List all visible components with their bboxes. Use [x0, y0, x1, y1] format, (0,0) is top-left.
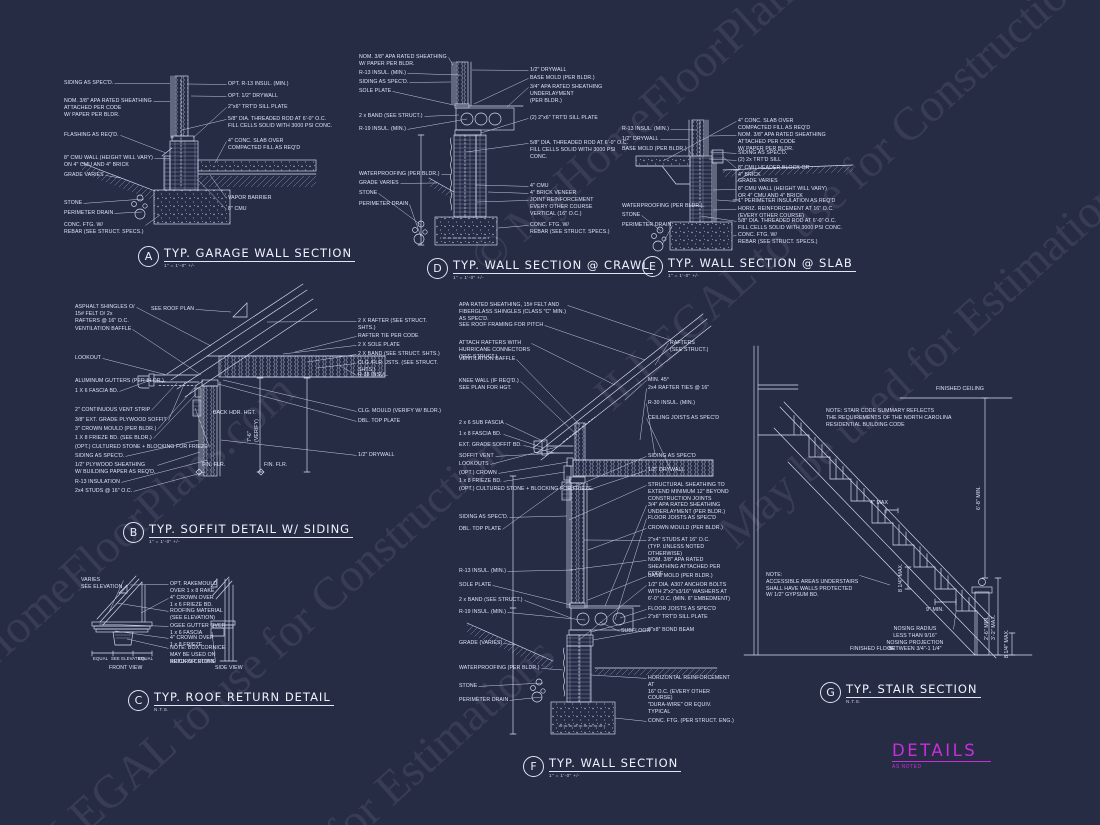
callout-label: 4" CMU — [530, 183, 549, 190]
detail-scale: 1" = 1'-0" +/- — [164, 263, 355, 268]
callout-label: 8" CMU — [228, 206, 247, 213]
callout-label: 2"x4" STUDS AT 16" O.C. (TYP. UNLESS NOT… — [648, 537, 710, 557]
callout-label: (OPT.) CULTURED STONE + BLOCKING FOR FRI… — [75, 444, 208, 451]
callout-label: GRADE (VARIES) — [459, 640, 502, 647]
callout-label: KNEE WALL (IF REQ'D.) SEE PLAN FOR HGT. — [459, 378, 519, 392]
callout-label: 4" CROWN OVER 1 x 6 FRIEZE BD. — [170, 595, 214, 609]
callout-label: BASE MOLD (PER BLDR.) — [530, 75, 595, 82]
callout-label: STONE — [459, 683, 477, 690]
callout-label: BASE MOLD (PER BLDR.) — [622, 146, 687, 153]
callout-label: 2 x BAND (SEE STRUCT.) — [359, 113, 423, 120]
understair-note: NOTE: ACCESSIBLE AREAS UNDERSTAIRS SHALL… — [766, 572, 858, 599]
stair-code-note: NOTE: STAIR CODE SUMMARY REFLECTS THE RE… — [826, 408, 952, 428]
callout-label: SIDING AS SPEC'D. — [359, 79, 408, 86]
detail-scale: 1" = 1'-0" +/- — [149, 539, 353, 544]
callout-label: ALUMINUM GUTTERS (PER BLDR.) — [75, 378, 164, 385]
callout-label: R-13 INSULATION — [75, 479, 120, 486]
callout-label: EXT. GRADE SOFFIT BD. — [459, 442, 522, 449]
callout-label: (2) 2"x6" TRT'D SILL PLATE — [530, 115, 598, 122]
callout-label: 4" BRICK VENEER — [530, 190, 576, 197]
detail-title-text: TYP. ROOF RETURN DETAIL — [154, 690, 334, 706]
detail-title-g: G TYP. STAIR SECTION N.T.S. — [820, 682, 981, 704]
detail-bubble-b: B — [123, 522, 144, 543]
callout-label: 1/2" DIA. A307 ANCHOR BOLTS WITH 2"x2"x3… — [648, 582, 730, 602]
callout-label: 2 X SOLE PLATE — [358, 342, 400, 349]
detail-bubble-c: C — [128, 690, 149, 711]
callout-label: WATERPROOFING (PER BLDR.) — [459, 665, 540, 672]
callout-label: 3/4" APA RATED SHEATHING UNDERLAYMENT (P… — [530, 84, 631, 104]
callout-label: RAFTER TIE PER CODE — [358, 333, 419, 340]
callout-label: OPT. RAKEMOULD OVER 1 x 8 RAKE — [170, 581, 217, 595]
detail-bubble-a: A — [138, 246, 159, 267]
callout-label: R-13 INSUL. (MIN.) — [459, 568, 506, 575]
callout-label: STONE — [622, 212, 640, 219]
callout-label: NOM. 3/8" APA RATED SHEATHING W/ PAPER P… — [359, 54, 447, 68]
detail-title-text: TYP. STAIR SECTION — [846, 682, 981, 698]
callout-label: HORIZONTAL REINFORCEMENT AT 16" O.C. (EV… — [648, 675, 735, 716]
bottom-riser-dim: 8 1/4" MAX. — [1004, 629, 1011, 658]
cad-details-sheet: SIDING AS SPEC'D. NOM. 3/8" APA RATED SH… — [0, 0, 1100, 825]
callout-label: DBL. TOP PLATE — [358, 418, 400, 425]
callout-label: R-19 INSUL. (MIN.) — [359, 126, 406, 133]
finished-ceiling-label: FINISHED CEILING — [936, 386, 984, 393]
callout-label: 3" CROWN MOULD (PER BLDR.) — [75, 426, 156, 433]
callout-label: PERIMETER DRAIN — [359, 201, 408, 208]
detail-title-b: B TYP. SOFFIT DETAIL W/ SIDING 1" = 1'-0… — [123, 522, 353, 544]
callout-label: 1/2" DRYWALL — [530, 67, 567, 74]
callout-label: BASE MOLD (PER BLDR.) — [648, 573, 713, 580]
callout-label: R-30 INSUL. (MIN.) — [648, 400, 695, 407]
callout-label: FLASHING AS REQ'D. — [64, 132, 119, 139]
callout-label: 1 X 8 FRIEZE BD. (SEE BLDR.) — [75, 435, 152, 442]
detail-bubble-e: E — [642, 256, 663, 277]
callout-label: 8" CMU WALL (HEIGHT WILL VARY) ON 4" CMU… — [64, 155, 153, 169]
callout-label: 2x4 RAFTER TIES @ 16" — [648, 385, 709, 392]
callout-label: APA RATED SHEATHING, 15# FELT AND FIBERG… — [459, 302, 566, 322]
callout-label: SIDING AS SPEC'D. — [738, 150, 787, 157]
callout-label: CROWN MOULD (PER BLDR.) — [648, 525, 723, 532]
equal-dimension: EQUAL — [138, 656, 153, 662]
callout-label: VENTILATION BAFFLE — [75, 326, 131, 333]
callout-label: LOOKOUT — [75, 355, 101, 362]
callout-label: 4" CONC. SLAB OVER COMPACTED FILL AS REQ… — [228, 138, 300, 152]
callout-label: SIDING AS SPEC'D. — [75, 453, 124, 460]
detail-a-garage-wall-section: SIDING AS SPEC'D. NOM. 3/8" APA RATED SH… — [60, 60, 340, 290]
callout-label: DBL. TOP PLATE — [459, 526, 501, 533]
callout-label: STONE — [64, 200, 82, 207]
callout-label: MIN. 45° — [648, 377, 669, 384]
callout-label: FLOOR JOISTS AS SPEC'D — [648, 515, 716, 522]
detail-title-e: E TYP. WALL SECTION @ SLAB 1" = 1'-0" +/… — [642, 256, 856, 278]
callout-label: CONC. FTG. W/ REBAR (SEE STRUCT. SPECS.) — [530, 222, 610, 236]
detail-scale: 1" = 1'-0" +/- — [549, 773, 681, 778]
callout-label: GRADE VARIES — [359, 180, 399, 187]
callout-label: PERIMETER DRAIN — [64, 210, 113, 217]
finished-floor-label: FINISHED FLOOR — [850, 646, 895, 653]
detail-f-wall-section: APA RATED SHEATHING, 15# FELT AND FIBERG… — [455, 290, 735, 790]
riser-height-dim: 8 1/4" MAX. — [898, 563, 905, 592]
callout-label: (2) 2x TRT'D SILL — [738, 157, 781, 164]
callout-label: 1/2" DRYWALL — [358, 452, 395, 459]
callout-label: SOLE PLATE — [359, 88, 391, 95]
sheet-title-block: DETAILS AS NOTED — [892, 741, 991, 770]
callout-label: 2 X RAFTER (SEE STRUCT. SHTS.) — [358, 318, 445, 332]
detail-title-f: F TYP. WALL SECTION 1" = 1'-0" +/- — [523, 756, 681, 778]
callout-label: SIDING AS SPEC'D. — [64, 80, 113, 87]
side-view-label: SIDE VIEW — [215, 665, 243, 672]
varies-note: VARIES SEE ELEVATION — [81, 577, 122, 591]
callout-label: 3/8" EXT. GRADE PLYWOOD SOFFIT — [75, 417, 167, 424]
finished-floor-marker: FIN. FLR. — [264, 462, 287, 469]
callout-label: 2"x6" TRT'D SILL PLATE — [648, 614, 708, 621]
detail-d-wall-section-crawl: NOM. 3/8" APA RATED SHEATHING W/ PAPER P… — [355, 40, 631, 290]
callout-label: RAFTERS (SEE STRUCT.) — [670, 340, 708, 354]
detail-b-soffit-detail: ASPHALT SHINGLES O/ 15# FELT O/ 2x RAFTE… — [55, 290, 445, 560]
detail-title-d: D TYP. WALL SECTION @ CRAWL 1" = 1'-0" +… — [427, 258, 653, 280]
callout-label: PERIMETER DRAIN — [622, 222, 671, 229]
callout-label: 4" CONC. SLAB OVER COMPACTED FILL AS REQ… — [738, 118, 810, 132]
headroom-dim: 6'-8" MIN. — [976, 486, 983, 510]
detail-e-wall-section-slab: R-13 INSUL. (MIN.) 1/2" DRYWALL BASE MOL… — [618, 110, 880, 290]
callout-label: SOLE PLATE — [459, 582, 491, 589]
callout-label: 8" CMU HEADER BLOCK OR 4" BRICK — [738, 165, 810, 179]
callout-label: CONC. FTG. (PER STRUCT. ENG.) — [648, 718, 734, 725]
callout-label: R-13 INSUL. (MIN.) — [622, 126, 669, 133]
callout-label: R-13 INSUL. (MIN.) — [359, 70, 406, 77]
callout-label: VENTILATION BAFFLE — [459, 356, 515, 363]
leader-lines — [740, 340, 1040, 715]
callout-label: OPT. 1/2" DRYWALL — [228, 93, 278, 100]
callout-label: R-38 INSUL. — [358, 372, 389, 379]
callout-label: CLG. MOULD (VERIFY W/ BLDR.) — [358, 408, 441, 415]
detail-title-text: TYP. WALL SECTION @ CRAWL — [453, 258, 653, 274]
callout-label: VAPOR BARRIER — [228, 195, 272, 202]
callout-label: 5/8" DIA. THREADED ROD AT 6'-0" O.C. FIL… — [228, 116, 332, 130]
callout-label: GRADE VARIES — [64, 172, 104, 179]
callout-label: CEILING JOISTS AS SPEC'D — [648, 415, 719, 422]
callout-label: ROOFING MATERIAL (SEE ELEVATION) — [170, 608, 223, 622]
callout-label: 1" PERIMETER INSULATION AS REQ'D — [738, 198, 835, 205]
detail-scale: 1" = 1'-0" +/- — [453, 275, 653, 280]
callout-label: CONC. FTG. W/ REBAR (SEE STRUCT. SPECS.) — [64, 222, 144, 236]
callout-label: SOFFIT VENT — [459, 453, 494, 460]
handrail-height-dim: 2'-6" MIN. 3'-2" MAX. — [984, 615, 998, 640]
callout-label: SIDING AS SPEC'D — [648, 453, 696, 460]
callout-label: SEE ROOF FRAMING FOR PITCH — [459, 322, 543, 329]
callout-label: (OPT.) CROWN — [459, 470, 497, 477]
callout-label: 8"x8" BOND BEAM — [648, 627, 694, 634]
callout-label: 2x4 STUDS @ 16" O.C. — [75, 488, 132, 495]
callout-label: 2" CONTINUOUS VENT STRIP — [75, 407, 150, 414]
front-view-label: FRONT VIEW — [109, 665, 142, 672]
callout-label: NOM. 3/8" APA RATED SHEATHING ATTACHED P… — [64, 98, 152, 118]
equal-dimension: EQUAL — [93, 656, 108, 662]
callout-label: CONC. FTG. W/ REBAR (SEE STRUCT. SPECS.) — [738, 232, 818, 246]
callout-label: WATERPROOFING (PER BLDR.) — [359, 171, 440, 178]
callout-label: LOOKOUTS — [459, 461, 489, 468]
callout-label: 5/8" DIA. THREADED ROD AT 6'-0" O.C. FIL… — [738, 218, 842, 232]
callout-label: (OPT.) CULTURED STONE + BLOCKING FOR FRI… — [459, 486, 592, 493]
callout-label: RETURN CROWN — [170, 659, 214, 666]
callout-label: OPT. R-13 INSUL. (MIN.) — [228, 81, 289, 88]
callout-label: STRUCTURAL SHEATHING TO EXTEND MINIMUM 1… — [648, 482, 729, 502]
detail-title-text: TYP. SOFFIT DETAIL W/ SIDING — [149, 522, 353, 538]
callout-label: 1/2" DRYWALL — [648, 467, 685, 474]
callout-label: GRADE VARIES — [738, 178, 778, 185]
detail-scale: 1" = 1'-0" +/- — [668, 273, 856, 278]
finished-floor-marker: FIN. FLR. — [202, 462, 225, 469]
callout-label: 2 X BAND (SEE STRUCT. SHTS.) — [358, 351, 440, 358]
callout-label: 1 x 8 FRIEZE BD. — [459, 478, 502, 485]
detail-scale: N.T.S. — [846, 699, 981, 704]
see-roof-plan-note: SEE ROOF PLAN — [151, 306, 194, 313]
detail-bubble-d: D — [427, 258, 448, 279]
detail-title-text: TYP. WALL SECTION — [549, 756, 681, 772]
callout-label: WATERPROOFING (PER BLDR.) — [622, 203, 703, 210]
callout-label: JOINT REINFORCEMENT EVERY OTHER COURSE V… — [530, 197, 593, 217]
detail-bubble-f: F — [523, 756, 544, 777]
subfloor-label: SUBFLOOR — [621, 628, 650, 635]
tread-depth-dim: 9" MIN. — [926, 607, 944, 614]
detail-scale: N.T.S. — [154, 707, 334, 712]
detail-title-text: TYP. WALL SECTION @ SLAB — [668, 256, 856, 272]
callout-label: R-19 INSUL. (MIN.) — [459, 609, 506, 616]
callout-label: 1/2" DRYWALL — [622, 136, 659, 143]
callout-label: STONE — [359, 190, 377, 197]
detail-title-text: TYP. GARAGE WALL SECTION — [164, 246, 355, 262]
detail-title-c: C TYP. ROOF RETURN DETAIL N.T.S. — [128, 690, 334, 712]
detail-bubble-g: G — [820, 682, 841, 703]
callout-label: SIDING AS SPEC'D. — [459, 514, 508, 521]
callout-label: 2 x 6 SUB FASCIA — [459, 420, 504, 427]
callout-label: FLOOR JOISTS AS SPEC'D — [648, 606, 716, 613]
sheet-scale: AS NOTED — [892, 764, 991, 770]
callout-label: ASPHALT SHINGLES O/ 15# FELT O/ 2x RAFTE… — [75, 304, 135, 324]
callout-label: PERIMETER DRAIN — [459, 697, 508, 704]
detail-c-roof-return: OPT. RAKEMOULD OVER 1 x 8 RAKE 4" CROWN … — [75, 565, 315, 740]
callout-label: 5/8" DIA. THREADED ROD AT 6'-0" O.C. FIL… — [530, 140, 631, 160]
detail-g-stair-section: FINISHED CEILING NOTE: STAIR CODE SUMMAR… — [740, 340, 1040, 715]
callout-label: 2"x6" TRT'D SILL PLATE — [228, 104, 288, 111]
callout-label: 1 X 6 FASCIA BD. — [75, 388, 118, 395]
callout-label: 1/2" PLYWOOD SHEATHING W/ BUILDING PAPER… — [75, 462, 156, 476]
baluster-spacing-dim: 4" MAX — [870, 500, 888, 507]
back-header-height-note: BACK HDR. HGT. — [213, 410, 256, 417]
sheet-title: DETAILS — [892, 741, 991, 762]
callout-label: 2 x BAND (SEE STRUCT.) — [459, 597, 523, 604]
detail-title-a: A TYP. GARAGE WALL SECTION 1" = 1'-0" +/… — [138, 246, 355, 268]
callout-label: 1 x 8 FASCIA BD. — [459, 431, 502, 438]
callout-label: 3/4" APA RATED SHEATHING UNDERLAYMENT (P… — [648, 502, 725, 516]
height-dimension: 7'-6" (VERIFY) — [247, 419, 261, 442]
